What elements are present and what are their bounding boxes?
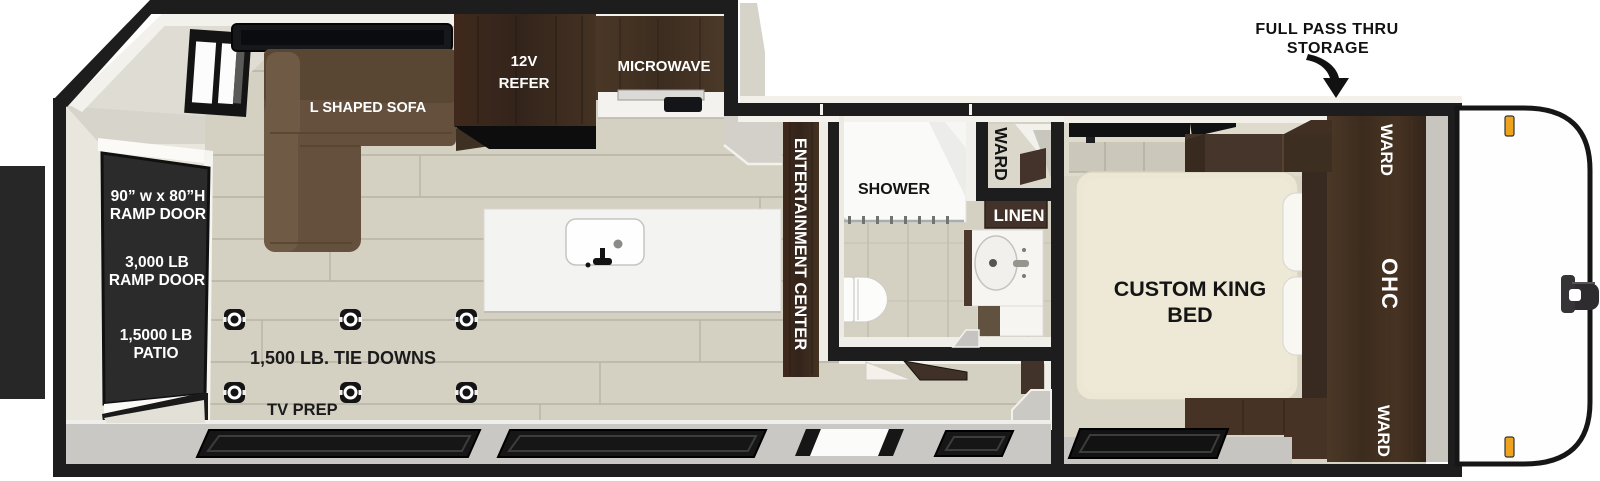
- svg-text:RAMP DOOR: RAMP DOOR: [110, 206, 206, 223]
- svg-text:SHOWER: SHOWER: [858, 181, 930, 198]
- svg-text:LINEN: LINEN: [994, 206, 1045, 225]
- svg-text:ENTERTAINMENT CENTER: ENTERTAINMENT CENTER: [791, 138, 809, 350]
- svg-text:CUSTOM KING: CUSTOM KING: [1114, 277, 1267, 301]
- svg-text:FULL PASS THRU: FULL PASS THRU: [1255, 21, 1398, 38]
- svg-text:12V: 12V: [511, 53, 538, 70]
- svg-text:MICROWAVE: MICROWAVE: [617, 58, 710, 75]
- svg-text:1,5000 LB: 1,5000 LB: [120, 327, 192, 344]
- svg-text:WARD: WARD: [1377, 124, 1396, 176]
- svg-text:WARD: WARD: [1374, 405, 1393, 457]
- svg-text:1,500 LB. TIE DOWNS: 1,500 LB. TIE DOWNS: [250, 348, 436, 368]
- svg-text:OHC: OHC: [1377, 258, 1402, 310]
- svg-text:RAMP DOOR: RAMP DOOR: [109, 272, 205, 289]
- svg-text:L SHAPED SOFA: L SHAPED SOFA: [310, 100, 427, 116]
- svg-text:STORAGE: STORAGE: [1287, 40, 1369, 57]
- svg-text:PATIO: PATIO: [133, 345, 178, 362]
- svg-text:REFER: REFER: [499, 75, 550, 92]
- svg-text:TV PREP: TV PREP: [267, 401, 338, 419]
- svg-text:WARD: WARD: [991, 127, 1011, 180]
- svg-text:90” w x 80”H: 90” w x 80”H: [111, 188, 206, 205]
- svg-text:BED: BED: [1167, 303, 1212, 327]
- svg-text:3,000 LB: 3,000 LB: [125, 254, 189, 271]
